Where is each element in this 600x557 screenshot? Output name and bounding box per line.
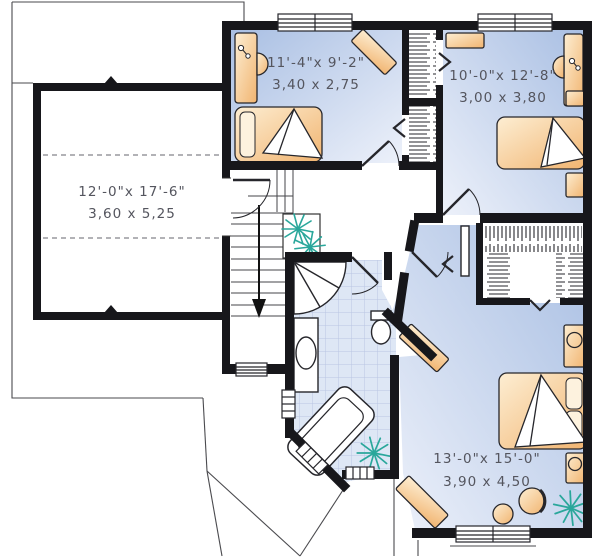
ottoman (493, 504, 513, 524)
bedroom1-metric: 3,40 x 2,75 (272, 77, 360, 93)
desk (235, 33, 257, 103)
window (346, 467, 374, 479)
window (456, 526, 530, 542)
stair-down-arrow (252, 205, 266, 318)
pillow (566, 378, 582, 409)
window (478, 14, 552, 31)
vanity-sink-icon (294, 318, 318, 392)
shelf (446, 33, 484, 48)
closet-door-leaf (461, 226, 469, 276)
bedroom1-imperial: 11'-4"x 9'-2" (267, 55, 365, 71)
pillow (240, 112, 255, 157)
nightstand (566, 91, 584, 106)
bedroom1-closet-hatch (409, 106, 436, 162)
window (278, 14, 352, 31)
window (236, 363, 267, 376)
floor-plan-svg: 12'-0"x 17'-6" 3,60 x 5,25 11'-4"x 9'-2"… (0, 0, 600, 557)
floor-plan: 12'-0"x 17'-6" 3,60 x 5,25 11'-4"x 9'-2"… (0, 0, 600, 557)
attic-room-metric: 3,60 x 5,25 (88, 206, 176, 222)
window (282, 390, 295, 418)
attic-room-imperial: 12'-0"x 17'-6" (78, 184, 185, 200)
bedroom2-metric: 3,00 x 3,80 (459, 90, 547, 106)
hall-door (233, 180, 270, 218)
master-bedroom-metric: 3,90 x 4,50 (443, 474, 531, 490)
wall-notch (104, 305, 118, 313)
bedroom2-closet-hatch (409, 31, 436, 97)
bedroom2-imperial: 10'-0"x 12'-8" (449, 68, 556, 84)
master-bedroom-imperial: 13'-0"x 15'-0" (433, 451, 540, 467)
attic-opening-jambs (222, 178, 231, 236)
wall-notch (104, 76, 118, 84)
nightstand (564, 325, 585, 367)
nightstand (566, 173, 584, 197)
